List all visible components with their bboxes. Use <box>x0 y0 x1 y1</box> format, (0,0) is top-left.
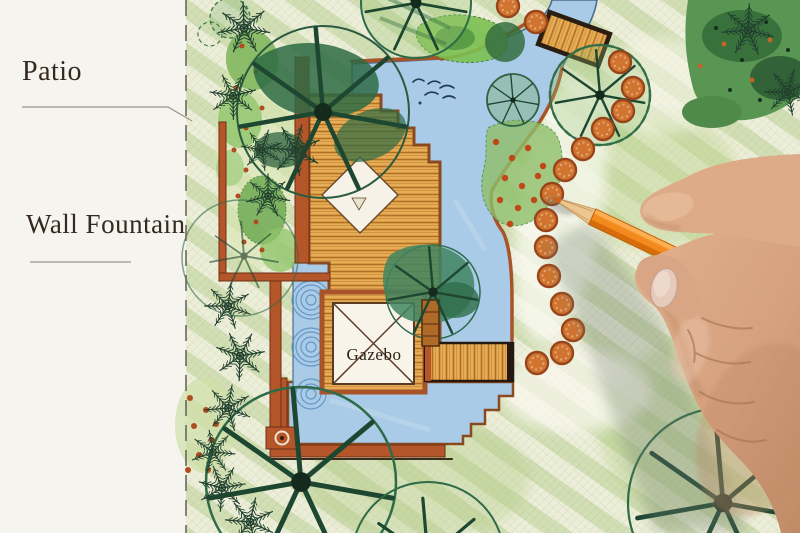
patio-label: Patio <box>22 56 82 88</box>
plan-drawing <box>0 0 800 533</box>
tree-small-on-bank <box>487 74 539 126</box>
gazebo-label: Gazebo <box>334 345 414 365</box>
tree-trunk <box>422 300 439 346</box>
wall-fountain-label: Wall Fountain <box>26 209 186 240</box>
boardwalk <box>425 343 514 381</box>
garden-plan-photo: Patio Wall Fountain Gazebo <box>0 0 800 533</box>
